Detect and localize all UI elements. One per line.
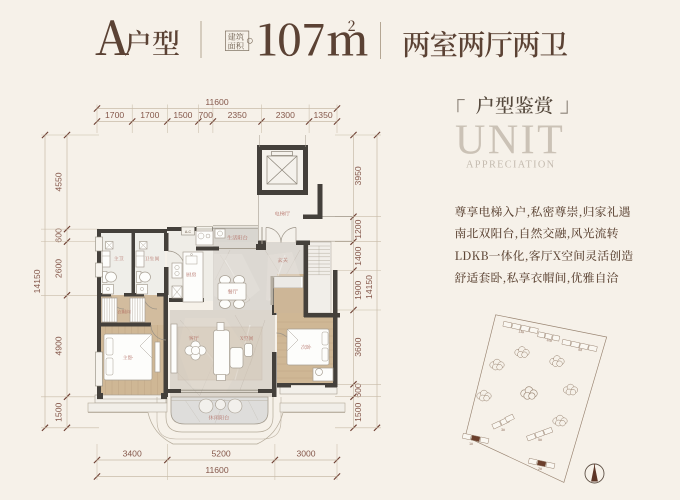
svg-text:1200: 1200 xyxy=(353,219,363,238)
svg-text:3000: 3000 xyxy=(296,449,315,459)
svg-text:1400: 1400 xyxy=(353,246,363,265)
svg-text:1900: 1900 xyxy=(353,281,363,300)
svg-text:14150: 14150 xyxy=(364,275,374,299)
svg-text:1500: 1500 xyxy=(353,403,363,422)
svg-text:11600: 11600 xyxy=(205,465,228,475)
svg-text:600: 600 xyxy=(54,228,64,243)
svg-text:3#: 3# xyxy=(501,428,505,432)
svg-text:1700: 1700 xyxy=(105,110,124,120)
svg-text:UNIT: UNIT xyxy=(455,118,565,164)
svg-text:1350: 1350 xyxy=(314,110,333,120)
svg-text:1500: 1500 xyxy=(54,403,64,422)
svg-text:1#: 1# xyxy=(469,442,473,446)
svg-text:1500: 1500 xyxy=(173,110,192,120)
svg-text:1700: 1700 xyxy=(140,110,159,120)
svg-text:2#: 2# xyxy=(538,467,542,471)
svg-text:3600: 3600 xyxy=(353,337,363,356)
svg-text:2350: 2350 xyxy=(228,110,247,120)
svg-text:2300: 2300 xyxy=(276,110,295,120)
svg-text:APPRECIATION: APPRECIATION xyxy=(466,160,555,171)
svg-text:2600: 2600 xyxy=(54,259,64,278)
svg-text:4900: 4900 xyxy=(54,336,64,355)
svg-text:5200: 5200 xyxy=(212,449,231,459)
svg-text:14150: 14150 xyxy=(32,269,42,293)
svg-text:3950: 3950 xyxy=(353,166,363,185)
svg-text:600: 600 xyxy=(353,383,363,398)
svg-text:4550: 4550 xyxy=(54,172,64,191)
svg-text:3400: 3400 xyxy=(123,449,142,459)
svg-text:700: 700 xyxy=(199,110,214,120)
svg-text:11600: 11600 xyxy=(205,97,228,107)
svg-text:A-C: A-C xyxy=(185,230,192,234)
svg-text:5#: 5# xyxy=(538,438,542,442)
